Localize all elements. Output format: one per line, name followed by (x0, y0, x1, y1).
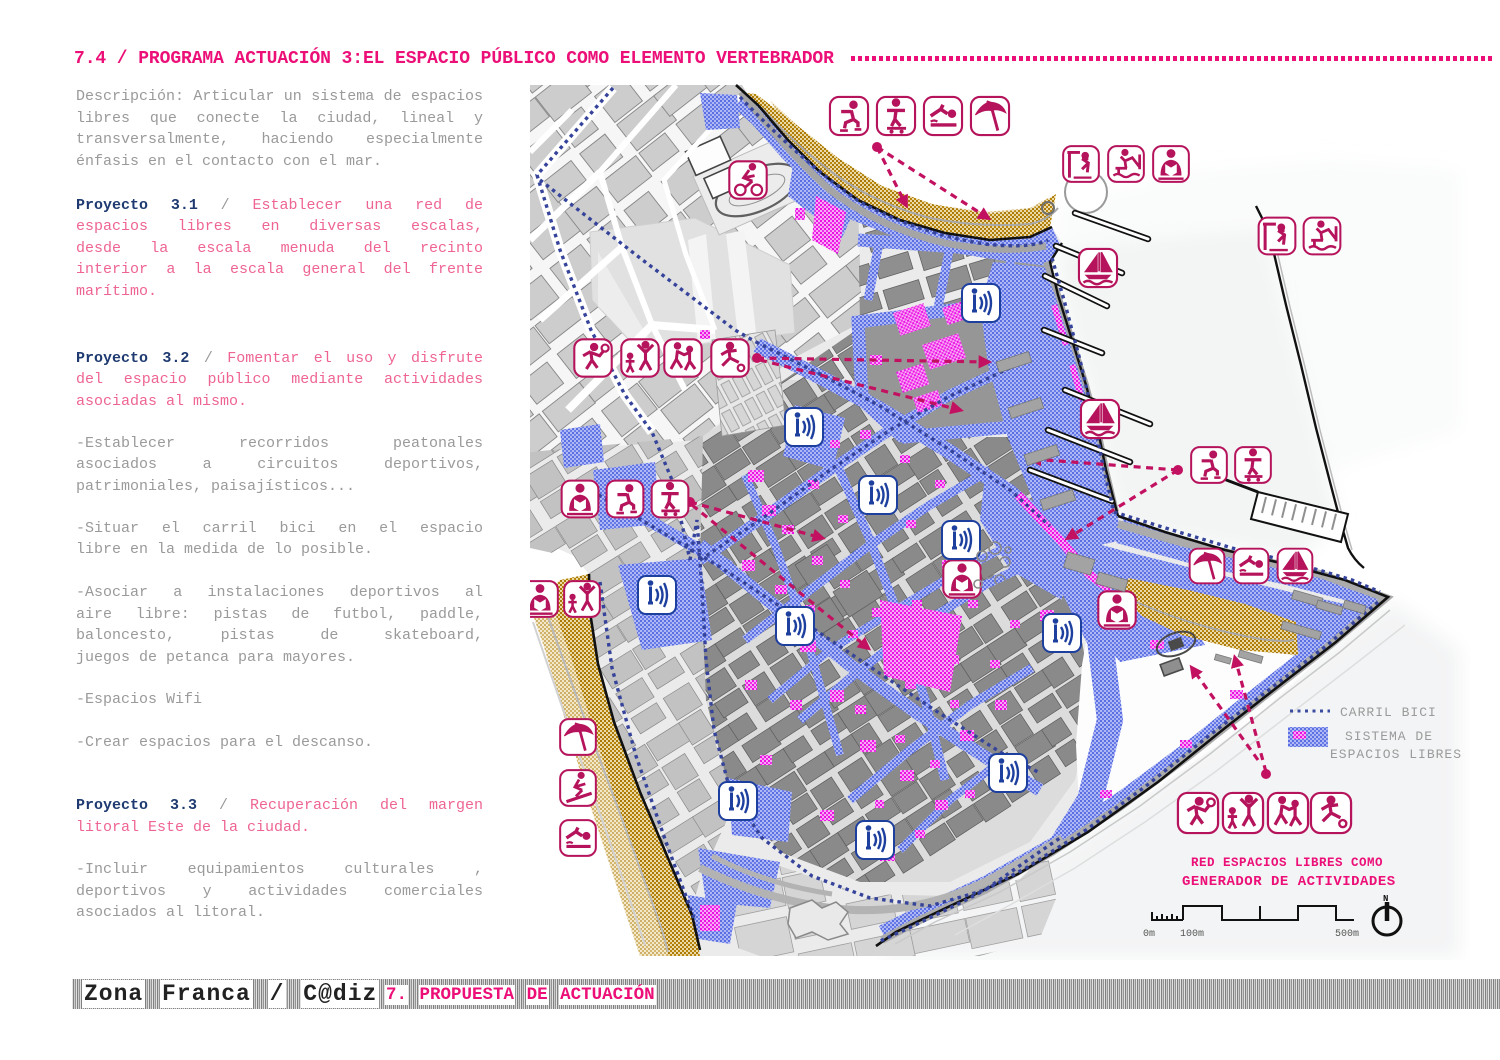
svg-text:ESPACIOS LIBRES: ESPACIOS LIBRES (1330, 747, 1462, 762)
svg-text:RED ESPACIOS LIBRES COMO: RED ESPACIOS LIBRES COMO (1191, 856, 1383, 870)
svg-text:GENERADOR DE ACTIVIDADES: GENERADOR DE ACTIVIDADES (1182, 874, 1396, 890)
svg-text:500m: 500m (1335, 929, 1359, 940)
svg-text:SISTEMA DE: SISTEMA DE (1345, 729, 1433, 744)
svg-text:100m: 100m (1180, 929, 1204, 940)
svg-text:CARRIL BICI: CARRIL BICI (1340, 705, 1437, 720)
svg-text:0m: 0m (1143, 929, 1155, 940)
svg-text:N: N (1383, 894, 1388, 904)
